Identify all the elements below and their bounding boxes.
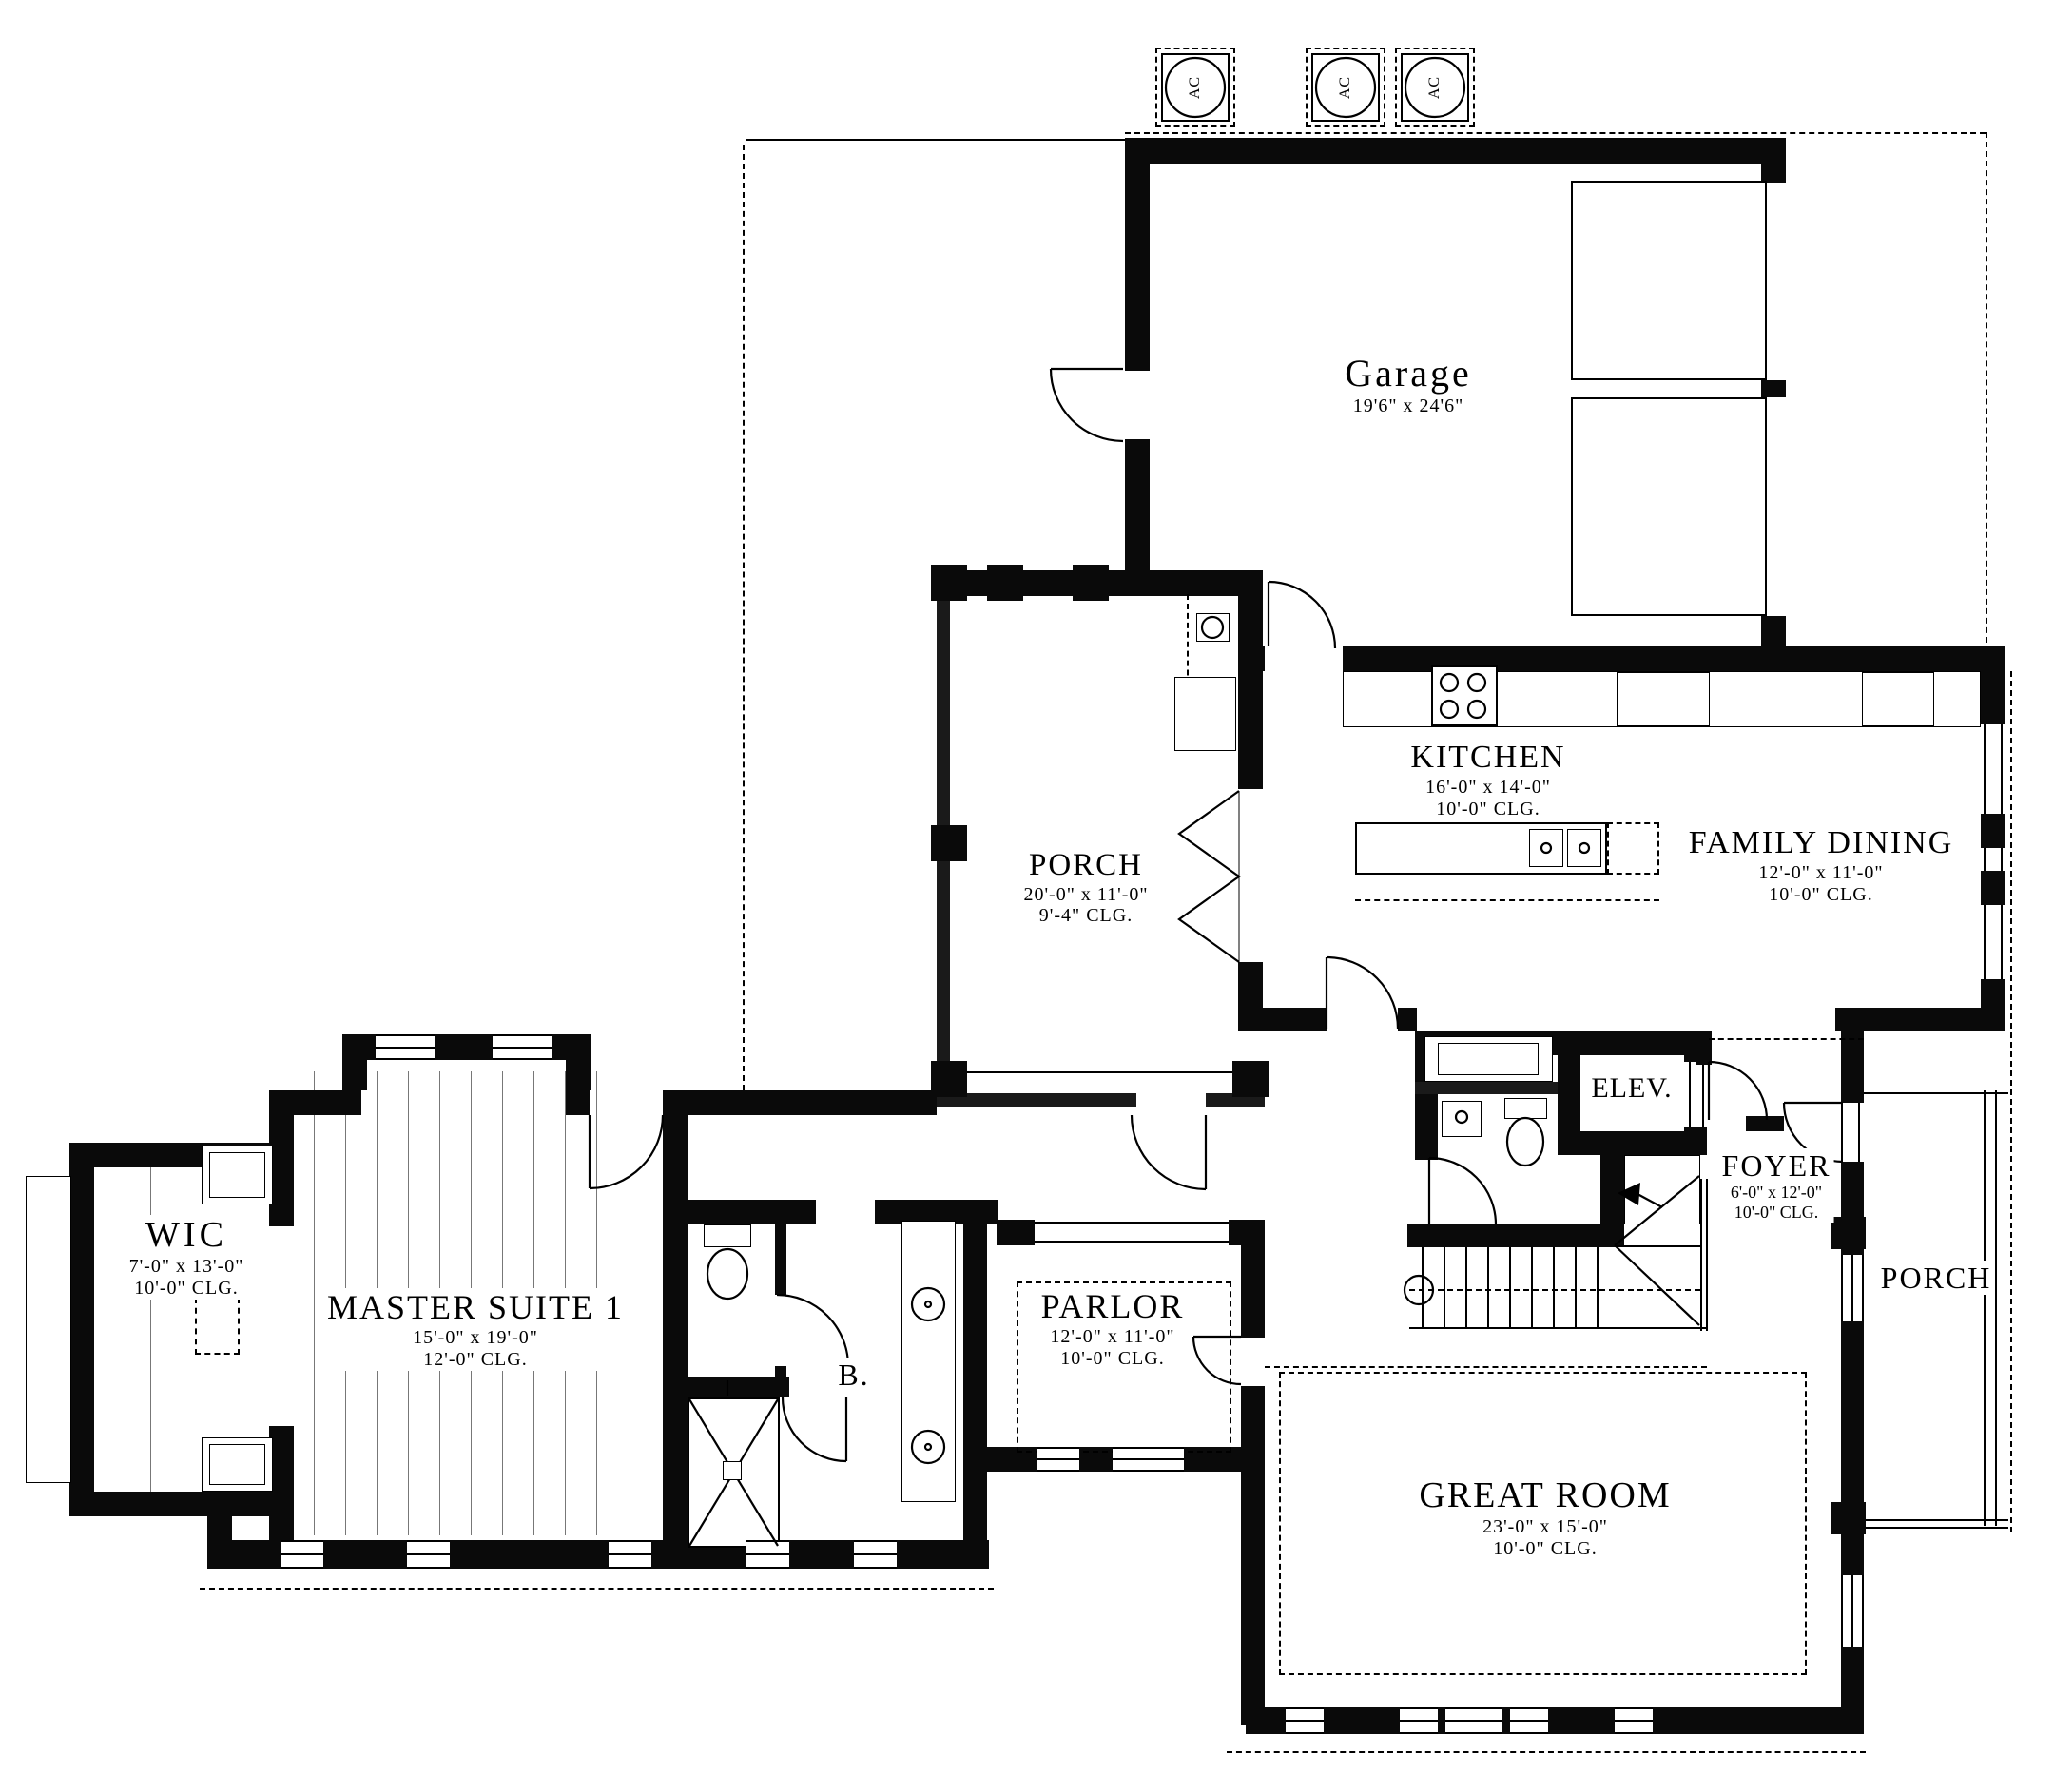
room-label-great-room: GREAT ROOM 23'-0" x 15'-0" 10'-0" CLG. [1416,1475,1674,1560]
drain-icon [925,1444,931,1450]
accordion-door [1179,791,1239,962]
door-arc [590,1115,663,1188]
ac-fan-icon [1316,58,1375,117]
stair-direction-arrow [1637,1194,1662,1207]
water-heater-icon [1202,617,1223,638]
floor-plan: AC AC AC [0,0,2054,1792]
sink-icon [912,1288,944,1320]
door-arc [1132,1115,1206,1189]
toilet-bowl [1507,1118,1543,1166]
room-label-front-porch: PORCH [1878,1261,1995,1295]
room-label-parlor: PARLOR 12'-0" x 11'-0" 10'-0" CLG. [1038,1287,1188,1370]
drain-icon [1456,1111,1467,1123]
room-label-elevator: ELEV. [1588,1072,1675,1105]
door-arc [1193,1337,1241,1384]
burner-icon [1468,674,1485,691]
room-label-rear-porch: PORCH 20'-0" x 11'-0" 9'-4" CLG. [1020,848,1151,927]
door-arc [777,1295,848,1366]
ac-fan-icon [1405,58,1464,117]
room-label-wic: WIC 7'-0" x 13'-0" 10'-0" CLG. [126,1215,247,1300]
sink-icon [912,1431,944,1463]
room-label-garage: Garage 19'6" x 24'6" [1342,352,1474,416]
burner-icon [1468,701,1485,718]
door-arc [1269,582,1335,648]
toilet-bowl [707,1249,747,1299]
door-arc [1709,1062,1767,1120]
room-label-family-dining: FAMILY DINING 12'-0" x 11'-0" 10'-0" CLG… [1686,825,1957,905]
stair-newel [1405,1276,1433,1304]
winder-tread [1615,1245,1699,1325]
burner-icon [1441,674,1458,691]
room-label-kitchen: KITCHEN 16'-0" x 14'-0" 10'-0" CLG. [1407,740,1568,819]
drain-icon [1579,843,1589,853]
door-arc [1429,1158,1496,1224]
stair-arrow-head [1618,1183,1640,1205]
door-arc [1327,957,1398,1029]
drain-icon [925,1301,931,1307]
room-label-bath: B. [835,1358,872,1392]
shower-drain [723,1461,742,1480]
door-arc [1051,369,1123,441]
winder-tread [1615,1176,1699,1245]
room-label-foyer: FOYER 6'-0" x 12'-0" 10'-0" CLG. [1719,1148,1834,1223]
ac-fan-icon [1166,58,1225,117]
burner-icon [1441,701,1458,718]
room-label-master-suite: MASTER SUITE 1 15'-0" x 19'-0" 12'-0" CL… [324,1288,627,1371]
drain-icon [1541,843,1551,853]
door-arc [783,1397,846,1461]
